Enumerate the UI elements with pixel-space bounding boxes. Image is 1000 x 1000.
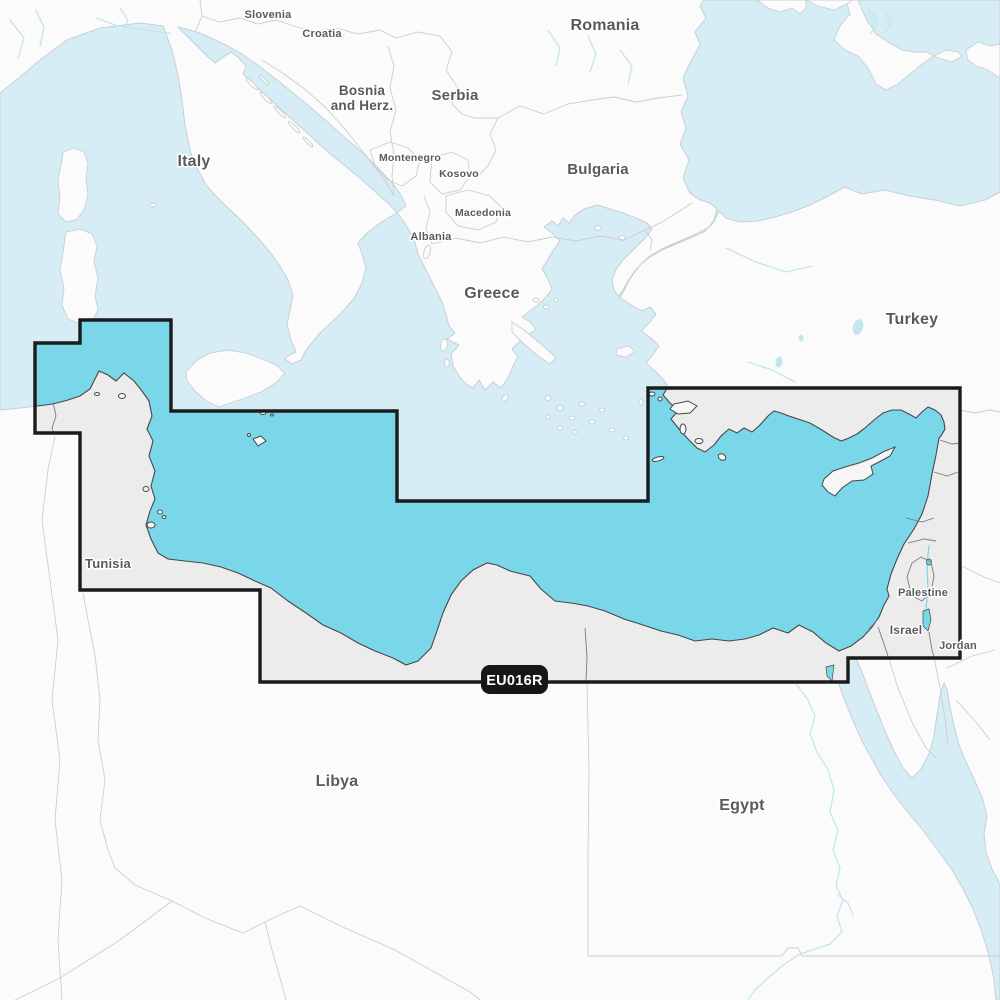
label-israel: Israel: [890, 623, 923, 637]
region-code-badge: EU016R: [481, 665, 548, 694]
pantelleria-island: [143, 487, 149, 492]
label-romania: Romania: [571, 17, 640, 34]
label-slovenia: Slovenia: [245, 9, 293, 21]
label-jordan: Jordan: [939, 640, 977, 652]
label-palestine: Palestine: [898, 587, 948, 599]
label-bulgaria: Bulgaria: [567, 161, 629, 178]
label-libya: Libya: [316, 773, 359, 790]
label-bosnia-line1: Bosnia: [339, 83, 386, 98]
sardinia-island: [60, 229, 98, 324]
corsica-island: [58, 148, 88, 222]
coverage-map-canvas: Slovenia Croatia Bosnia and Herz. Serbia…: [0, 0, 1000, 1000]
djerba-island: [147, 522, 155, 528]
label-albania: Albania: [410, 231, 452, 243]
label-kosovo: Kosovo: [439, 168, 479, 180]
label-turkey: Turkey: [886, 311, 938, 328]
label-bosnia-line2: and Herz.: [331, 98, 394, 113]
label-egypt: Egypt: [719, 797, 765, 814]
map-stage: Slovenia Croatia Bosnia and Herz. Serbia…: [0, 0, 1000, 1000]
chios-island: [680, 424, 686, 434]
bizerte-lagoon: [119, 394, 126, 399]
label-tunisia: Tunisia: [85, 556, 132, 571]
label-greece: Greece: [464, 285, 519, 302]
label-macedonia: Macedonia: [455, 207, 511, 219]
elba-island: [150, 203, 157, 207]
label-montenegro: Montenegro: [379, 152, 441, 164]
region-code-badge-text: EU016R: [486, 673, 543, 689]
samos-island: [695, 439, 703, 444]
thasos-island: [595, 226, 601, 231]
label-serbia: Serbia: [431, 87, 479, 104]
label-croatia: Croatia: [302, 28, 342, 40]
label-italy: Italy: [177, 153, 210, 170]
